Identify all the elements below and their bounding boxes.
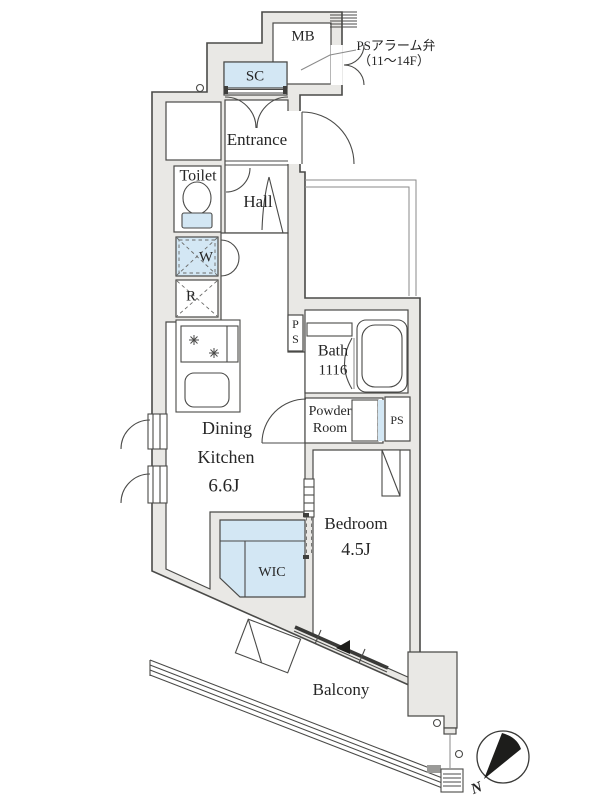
drain-circle [456, 751, 463, 758]
floorplan-drawing: N MB PSアラーム弁 （11〜14F） SC Entrance Toilet… [0, 0, 600, 800]
front-door-arc [302, 112, 354, 164]
mb-door-arc-bottom [344, 65, 364, 85]
compass-needle-icon [484, 733, 521, 779]
floorplan-page: N MB PSアラーム弁 （11〜14F） SC Entrance Toilet… [0, 0, 600, 800]
label-bedroom-size: 4.5J [341, 539, 371, 559]
window-frame [148, 414, 167, 449]
window-frame [148, 466, 167, 503]
label-powder-1: Powder [309, 404, 352, 419]
label-bedroom: Bedroom [324, 514, 387, 533]
front-door-gap [287, 111, 301, 164]
label-balcony: Balcony [313, 680, 370, 699]
balcony-partition-board [441, 769, 463, 792]
label-ps-top-p: P [292, 317, 299, 331]
bathtub-inner [362, 325, 402, 387]
bath-counter [307, 323, 352, 336]
room-wic [220, 520, 305, 597]
label-bath-size: 1116 [319, 362, 348, 378]
mb-door-gap [331, 45, 343, 85]
label-mb: MB [291, 28, 314, 44]
burner-icon [189, 335, 199, 345]
label-ps-side: PS [390, 413, 403, 427]
partition-step [427, 765, 441, 773]
compass-north-label: N [468, 779, 486, 799]
label-ps-alarm-2: （11〜14F） [358, 53, 430, 68]
window-swing-arc [121, 420, 150, 449]
label-kitchen: Kitchen [198, 447, 255, 467]
label-ps-alarm-1: PSアラーム弁 [356, 38, 435, 53]
label-wic: WIC [258, 565, 285, 580]
label-dining: Dining [202, 418, 252, 438]
se-wall-block [408, 652, 457, 728]
stove [181, 326, 238, 362]
label-entrance: Entrance [227, 130, 287, 149]
exterior-alcove [166, 102, 221, 160]
label-powder-2: Room [313, 421, 347, 436]
vanity [352, 400, 378, 441]
window-swing-arc [121, 474, 150, 503]
label-hall: Hall [243, 192, 273, 211]
label-ps-top-s: S [292, 332, 299, 346]
label-washer: W [199, 249, 214, 265]
void-outline [305, 180, 416, 296]
toilet-bowl [183, 182, 211, 214]
toilet-tank [182, 213, 212, 228]
drain-circle [434, 720, 441, 727]
kitchen-counter [176, 320, 240, 412]
burner-icon [209, 348, 219, 358]
label-sc: SC [246, 68, 264, 84]
vent-circle [197, 85, 204, 92]
label-dk-size: 6.6J [208, 475, 239, 496]
compass: N [468, 731, 529, 798]
sink [185, 373, 229, 407]
label-bath: Bath [318, 343, 348, 360]
vanity-strip [378, 400, 384, 441]
label-toilet: Toilet [179, 168, 217, 185]
label-refrigerator: R [186, 288, 196, 304]
